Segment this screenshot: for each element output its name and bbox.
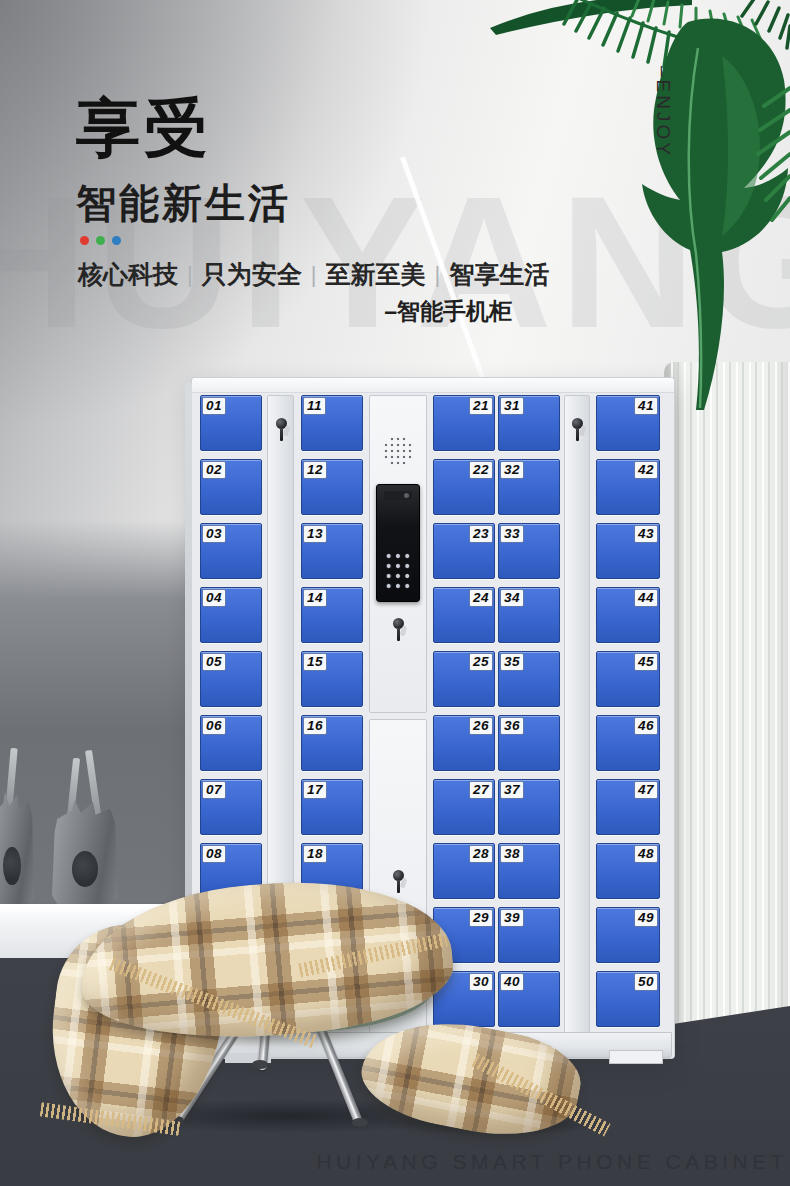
locker-number-label: 36 bbox=[501, 718, 523, 734]
locker-door-36: 36 bbox=[498, 715, 560, 771]
locker-number-label: 22 bbox=[470, 462, 492, 478]
locker-door-35: 35 bbox=[498, 651, 560, 707]
locker-door-26: 26 bbox=[433, 715, 495, 771]
locker-number-label: 18 bbox=[304, 846, 326, 862]
control-door-upper bbox=[369, 395, 427, 713]
intercom-panel bbox=[376, 484, 420, 602]
cabinet-top-panel bbox=[192, 378, 674, 393]
locker-door-14: 14 bbox=[301, 587, 363, 643]
locker-door-13: 13 bbox=[301, 523, 363, 579]
accent-dot bbox=[80, 236, 89, 245]
page-subtitle: 智能新生活 bbox=[76, 176, 291, 231]
locker-number-label: 02 bbox=[203, 462, 225, 478]
utility-column-right bbox=[564, 395, 590, 1035]
locker-door-23: 23 bbox=[433, 523, 495, 579]
locker-door-01: 01 bbox=[200, 395, 262, 451]
locker-door-41: 41 bbox=[596, 395, 660, 451]
locker-door-11: 11 bbox=[301, 395, 363, 451]
locker-number-label: 45 bbox=[635, 654, 657, 670]
locker-number-label: 34 bbox=[501, 590, 523, 606]
key-lock-icon bbox=[572, 418, 583, 429]
accent-dot bbox=[96, 236, 105, 245]
locker-door-12: 12 bbox=[301, 459, 363, 515]
locker-number-label: 08 bbox=[203, 846, 225, 862]
locker-number-label: 42 bbox=[635, 462, 657, 478]
locker-number-label: 16 bbox=[304, 718, 326, 734]
locker-door-49: 49 bbox=[596, 907, 660, 963]
bottom-brand-watermark: HUIYANG SMART PHONE CABINET bbox=[316, 1150, 788, 1174]
tagline-segment: 只为安全 bbox=[202, 260, 302, 288]
locker-door-31: 31 bbox=[498, 395, 560, 451]
hero-text-block: 享受 智能新生活 核心科技|只为安全|至新至美|智享生活 –智能手机柜 bbox=[76, 96, 512, 336]
promo-poster: HUIYANG –ENJOY 享受 智能新生活 核心科技|只为安全|至新至美|智… bbox=[0, 0, 790, 1186]
intercom-camera-icon bbox=[384, 491, 412, 500]
locker-number-label: 32 bbox=[501, 462, 523, 478]
locker-number-label: 13 bbox=[304, 526, 326, 542]
accent-dot bbox=[112, 236, 121, 245]
locker-number-label: 33 bbox=[501, 526, 523, 542]
locker-door-03: 03 bbox=[200, 523, 262, 579]
locker-door-48: 48 bbox=[596, 843, 660, 899]
door-column-31-40: 31323334353637383940 bbox=[498, 395, 560, 1035]
locker-door-17: 17 bbox=[301, 779, 363, 835]
locker-door-21: 21 bbox=[433, 395, 495, 451]
locker-number-label: 28 bbox=[470, 846, 492, 862]
locker-number-label: 25 bbox=[470, 654, 492, 670]
locker-number-label: 17 bbox=[304, 782, 326, 798]
locker-door-38: 38 bbox=[498, 843, 560, 899]
locker-number-label: 48 bbox=[635, 846, 657, 862]
locker-number-label: 47 bbox=[635, 782, 657, 798]
hero-tagline: 核心科技|只为安全|至新至美|智享生活 bbox=[78, 258, 549, 291]
locker-door-45: 45 bbox=[596, 651, 660, 707]
tagline-separator: | bbox=[311, 262, 317, 287]
locker-number-label: 40 bbox=[501, 974, 523, 990]
locker-number-label: 07 bbox=[203, 782, 225, 798]
locker-door-27: 27 bbox=[433, 779, 495, 835]
locker-door-15: 15 bbox=[301, 651, 363, 707]
decor-vase bbox=[0, 792, 34, 906]
locker-number-label: 21 bbox=[470, 398, 492, 414]
locker-door-32: 32 bbox=[498, 459, 560, 515]
locker-number-label: 14 bbox=[304, 590, 326, 606]
locker-door-33: 33 bbox=[498, 523, 560, 579]
accent-dots bbox=[80, 236, 121, 245]
cabinet-foot bbox=[609, 1050, 663, 1064]
locker-number-label: 15 bbox=[304, 654, 326, 670]
locker-number-label: 38 bbox=[501, 846, 523, 862]
locker-door-16: 16 bbox=[301, 715, 363, 771]
locker-number-label: 11 bbox=[304, 398, 325, 414]
tagline-segment: 智享生活 bbox=[449, 260, 549, 288]
locker-number-label: 37 bbox=[501, 782, 523, 798]
locker-number-label: 39 bbox=[501, 910, 523, 926]
locker-door-24: 24 bbox=[433, 587, 495, 643]
stool-foot bbox=[252, 1060, 268, 1069]
locker-door-50: 50 bbox=[596, 971, 660, 1027]
locker-door-43: 43 bbox=[596, 523, 660, 579]
locker-number-label: 31 bbox=[501, 398, 523, 414]
product-label: –智能手机柜 bbox=[384, 296, 512, 327]
locker-door-44: 44 bbox=[596, 587, 660, 643]
locker-number-label: 23 bbox=[470, 526, 492, 542]
enjoy-vertical-text: –ENJOY bbox=[650, 57, 674, 167]
locker-door-06: 06 bbox=[200, 715, 262, 771]
door-column-41-50: 41424344454647484950 bbox=[596, 395, 660, 1035]
key-lock-icon bbox=[276, 418, 287, 429]
tagline-segment: 至新至美 bbox=[325, 260, 425, 288]
locker-number-label: 50 bbox=[635, 974, 657, 990]
locker-number-label: 12 bbox=[304, 462, 326, 478]
locker-door-22: 22 bbox=[433, 459, 495, 515]
locker-door-02: 02 bbox=[200, 459, 262, 515]
locker-number-label: 27 bbox=[470, 782, 492, 798]
locker-number-label: 05 bbox=[203, 654, 225, 670]
locker-door-46: 46 bbox=[596, 715, 660, 771]
locker-number-label: 03 bbox=[203, 526, 225, 542]
locker-door-25: 25 bbox=[433, 651, 495, 707]
key-lock-icon bbox=[393, 618, 404, 629]
locker-number-label: 46 bbox=[635, 718, 657, 734]
keypad-icon bbox=[384, 551, 412, 591]
locker-number-label: 41 bbox=[635, 398, 657, 414]
speaker-grille-icon bbox=[383, 436, 413, 466]
locker-door-04: 04 bbox=[200, 587, 262, 643]
locker-door-07: 07 bbox=[200, 779, 262, 835]
locker-number-label: 29 bbox=[470, 910, 492, 926]
window-curtain bbox=[664, 362, 790, 1030]
page-title: 享受 bbox=[76, 96, 212, 160]
locker-door-47: 47 bbox=[596, 779, 660, 835]
locker-number-label: 26 bbox=[470, 718, 492, 734]
locker-number-label: 04 bbox=[203, 590, 225, 606]
locker-door-05: 05 bbox=[200, 651, 262, 707]
stool-foot bbox=[352, 1118, 368, 1127]
locker-door-28: 28 bbox=[433, 843, 495, 899]
locker-door-39: 39 bbox=[498, 907, 560, 963]
locker-door-42: 42 bbox=[596, 459, 660, 515]
locker-number-label: 24 bbox=[470, 590, 492, 606]
locker-number-label: 43 bbox=[635, 526, 657, 542]
locker-door-34: 34 bbox=[498, 587, 560, 643]
tagline-segment: 核心科技 bbox=[78, 260, 178, 288]
locker-door-40: 40 bbox=[498, 971, 560, 1027]
locker-number-label: 44 bbox=[635, 590, 657, 606]
locker-number-label: 01 bbox=[203, 398, 225, 414]
locker-number-label: 30 bbox=[470, 974, 492, 990]
locker-number-label: 49 bbox=[635, 910, 657, 926]
tagline-separator: | bbox=[187, 262, 193, 287]
locker-number-label: 35 bbox=[501, 654, 523, 670]
locker-number-label: 06 bbox=[203, 718, 225, 734]
key-lock-icon bbox=[393, 870, 404, 881]
tagline-separator: | bbox=[434, 262, 440, 287]
locker-door-37: 37 bbox=[498, 779, 560, 835]
